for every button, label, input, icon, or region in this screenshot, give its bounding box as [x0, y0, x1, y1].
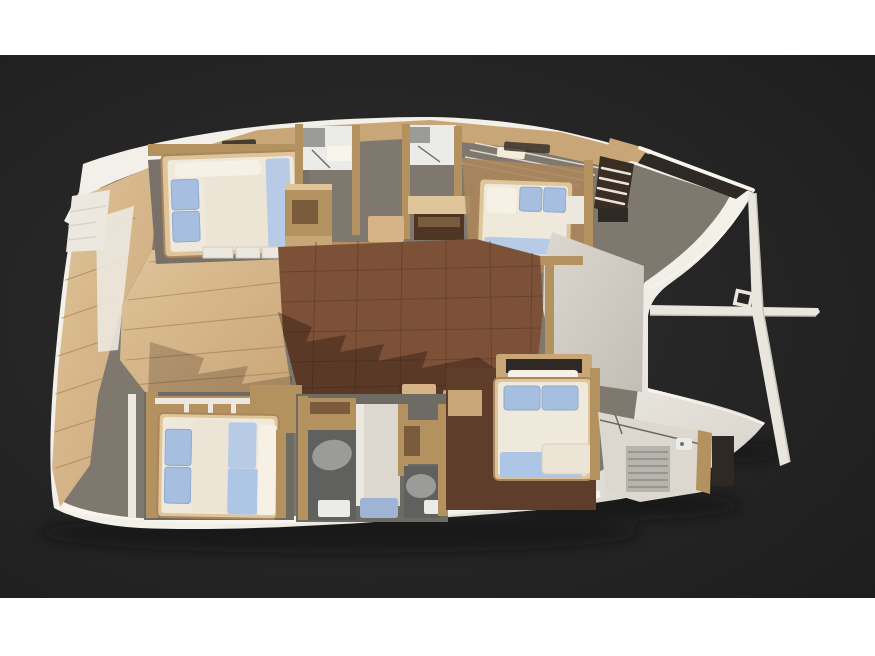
folded-blanket: [227, 468, 258, 515]
table-top: [418, 217, 460, 227]
counter-recess: [292, 200, 318, 224]
step: [368, 216, 404, 242]
bed-drawers: [203, 247, 284, 258]
folded-blanket: [228, 422, 257, 468]
sink-unit: [327, 146, 351, 161]
companionway-ladder: [594, 156, 634, 222]
ladder-base: [598, 208, 628, 222]
render-canvas: [0, 0, 875, 656]
cabin-port-bottom: [128, 385, 302, 520]
pillow: [172, 211, 200, 242]
toilet: [406, 474, 436, 498]
headboard-bolster: [486, 187, 517, 214]
dark-doorway: [712, 436, 734, 486]
duvet: [191, 420, 233, 513]
pillow: [543, 188, 566, 213]
cabin-starboard-bottom: [446, 354, 600, 510]
drawer: [203, 247, 233, 258]
pillow: [542, 386, 578, 410]
double-bed: [157, 413, 279, 519]
shower-tray: [303, 128, 325, 147]
pillow: [171, 179, 199, 210]
bottom-bathrooms: [296, 394, 448, 522]
bulkhead: [276, 430, 286, 518]
galley: [285, 184, 332, 250]
faucet: [680, 442, 684, 446]
double-bed: [494, 378, 592, 480]
sink-unit: [318, 500, 350, 517]
pillow: [164, 467, 191, 503]
shower-tray: [360, 498, 398, 518]
pillow: [504, 386, 540, 410]
shelf-divider: [231, 398, 236, 415]
shower-tray: [410, 127, 430, 143]
column-highlight: [356, 404, 364, 506]
yacht-layout-render: [0, 0, 875, 656]
side-cabinet: [448, 390, 482, 416]
counter-top-edge: [285, 184, 332, 190]
cabinet-recess: [310, 402, 350, 414]
chart-desk: [408, 196, 470, 214]
foot-roll: [257, 425, 277, 515]
slatted-berth: [626, 446, 670, 492]
pillow: [519, 187, 542, 212]
deck-trim: [128, 394, 136, 518]
bulkhead: [352, 125, 360, 235]
shelf-rail: [155, 398, 251, 404]
headboard-bolster: [174, 160, 260, 178]
cabinet-recess: [404, 426, 420, 456]
pillow: [165, 429, 192, 465]
duvet: [204, 175, 269, 251]
bench-seat: [542, 444, 592, 474]
nightstand: [566, 196, 586, 224]
drawer: [236, 247, 260, 258]
bulkhead: [590, 368, 600, 480]
wood-wall: [696, 430, 712, 494]
shelf-divider: [208, 398, 213, 415]
partition-wall: [545, 262, 554, 364]
crossbeam-shadow-edge: [650, 315, 816, 316]
double-bed: [161, 151, 302, 258]
